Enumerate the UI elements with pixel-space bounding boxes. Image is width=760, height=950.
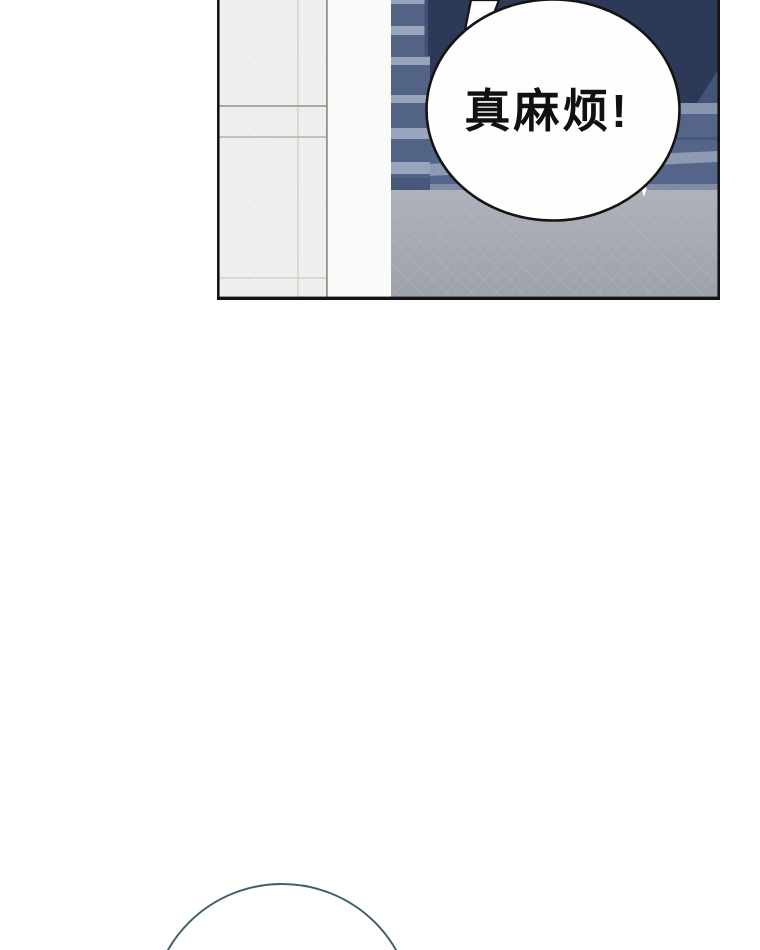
comic-panel: 真麻烦! [217,0,720,300]
bottom-bubble-arc [151,884,413,950]
speech-bubble-text: 真麻烦! [464,85,629,137]
stair-wall-edge [425,0,429,56]
white-pillar [327,0,391,297]
tiled-wall [220,0,328,297]
comic-artwork: 真麻烦! [0,0,760,950]
comic-page: 真麻烦! [0,0,760,950]
